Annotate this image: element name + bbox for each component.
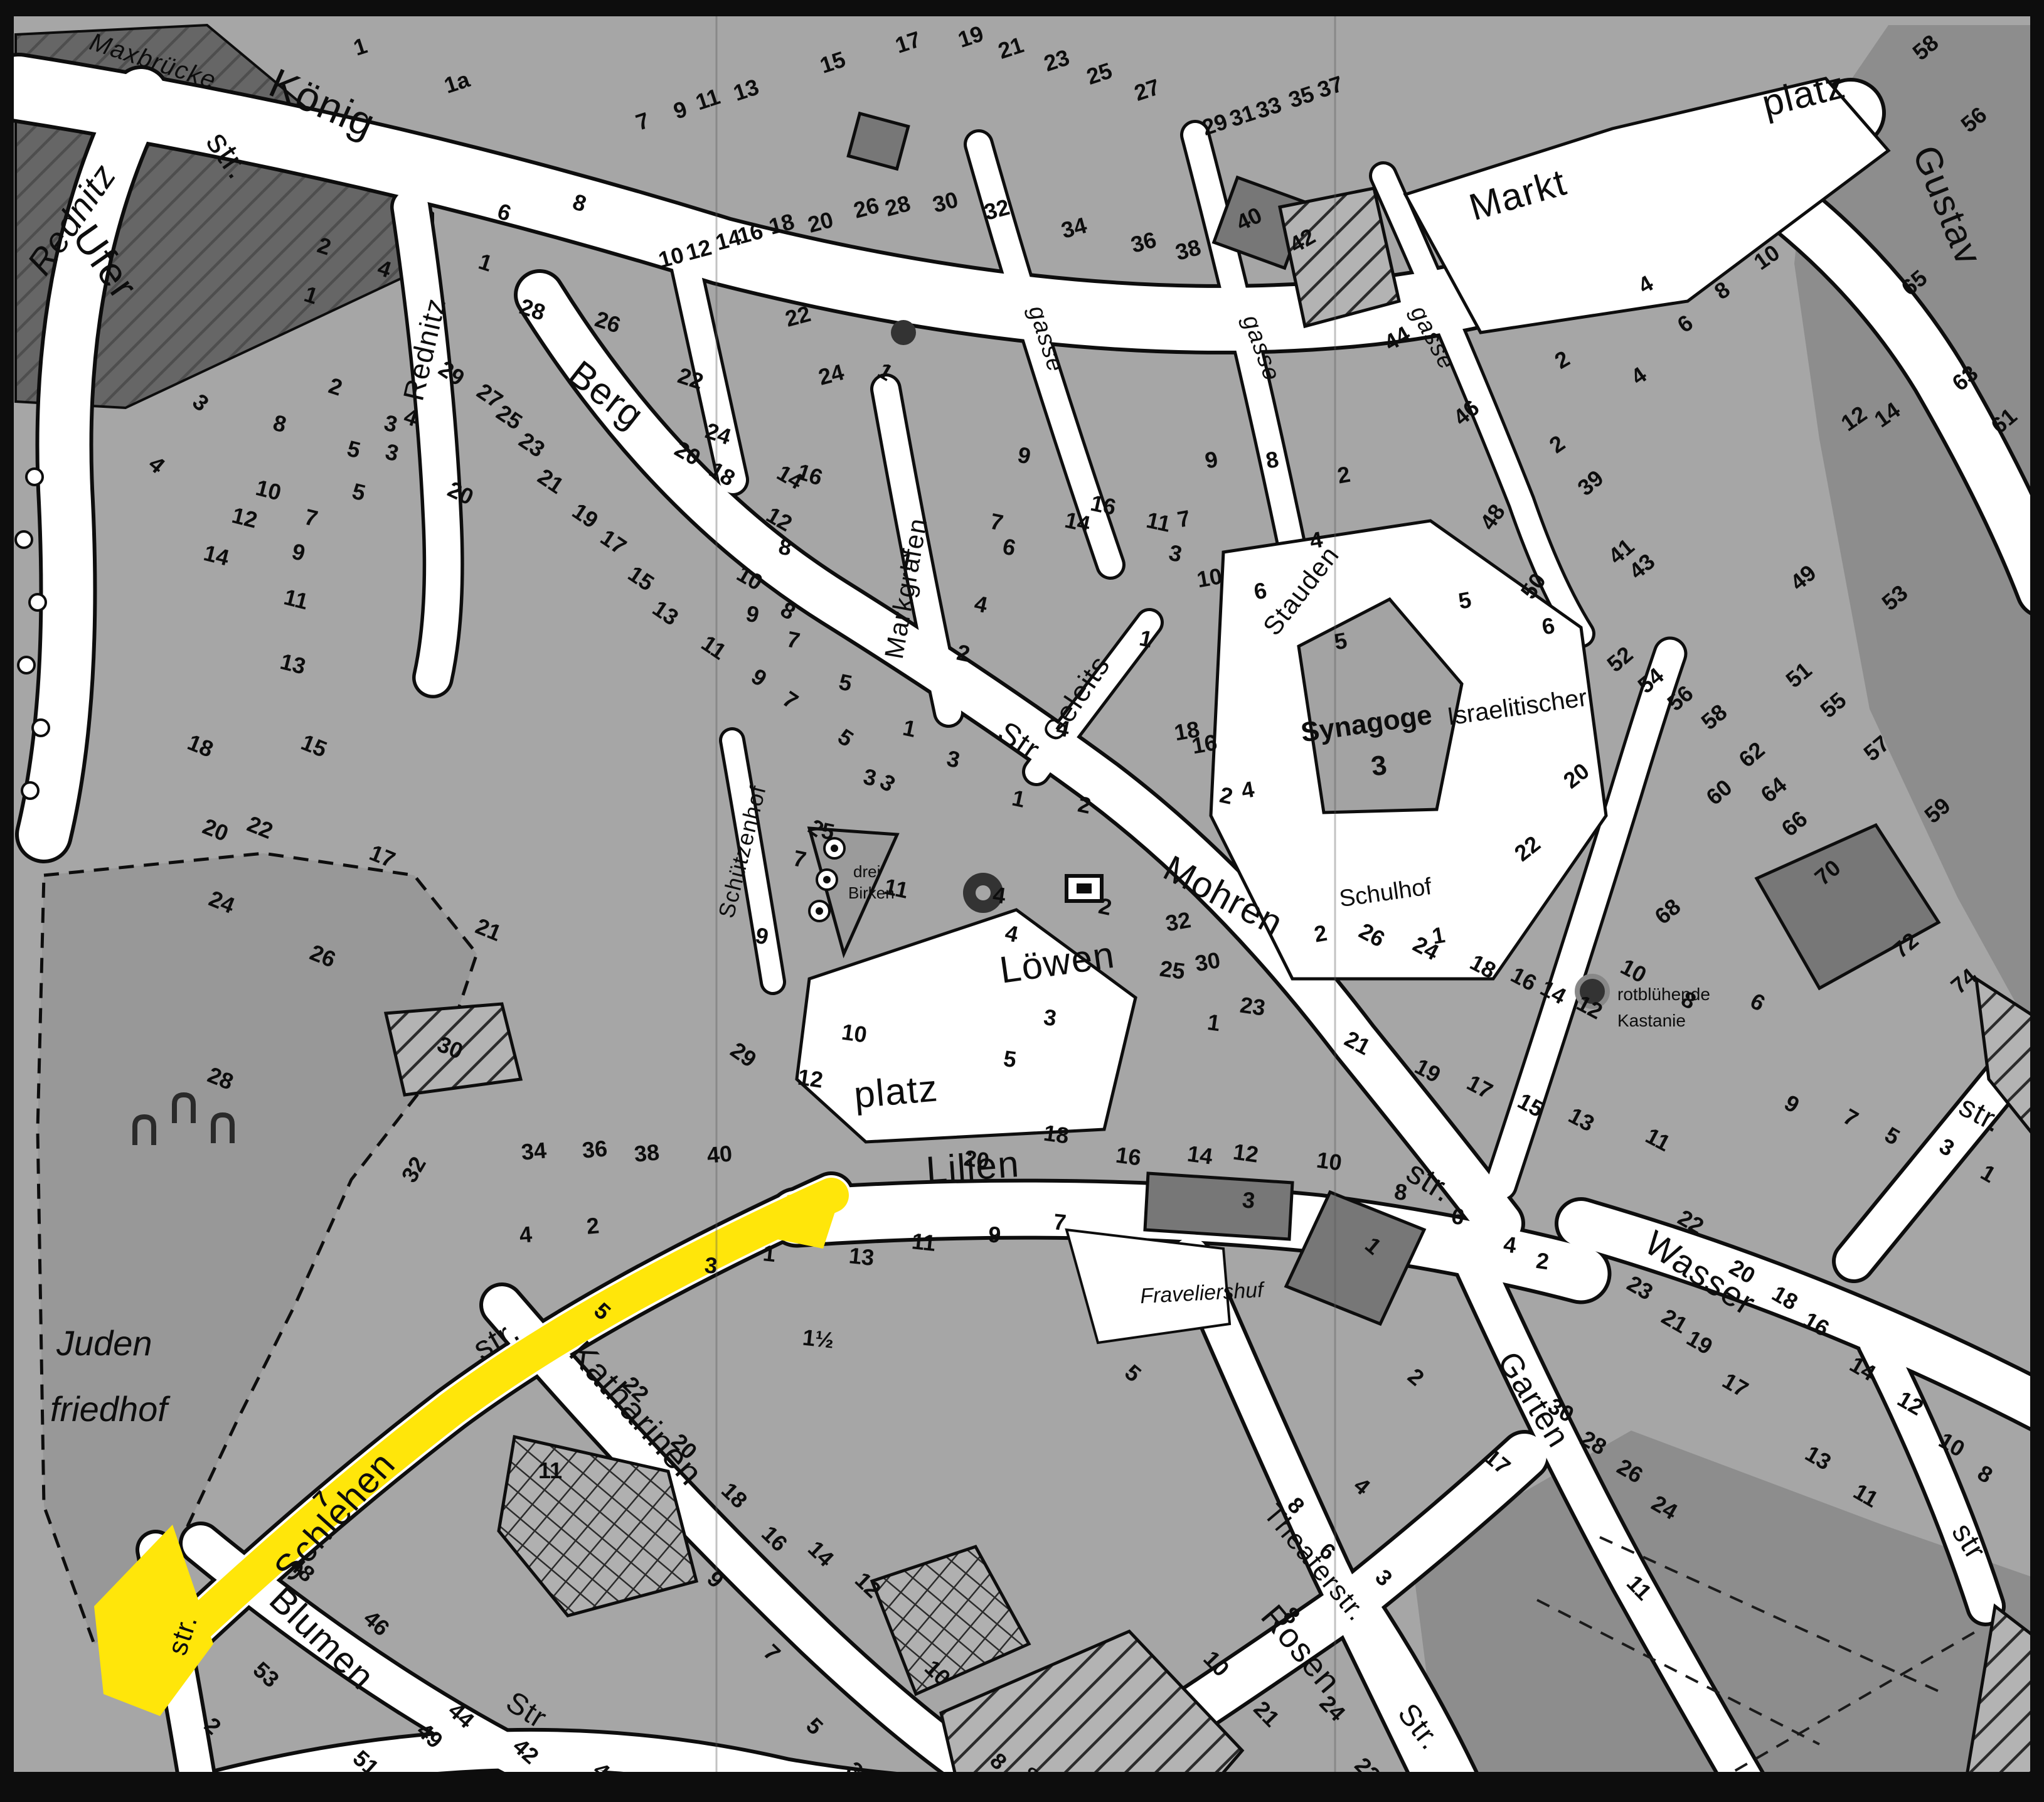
- house-number: 12: [1232, 1139, 1260, 1168]
- house-number: 13: [848, 1242, 875, 1271]
- house-number: 14: [1063, 507, 1093, 537]
- house-number: 10: [840, 1019, 868, 1048]
- house-number: 16: [1190, 729, 1220, 759]
- street-label: platz: [852, 1067, 940, 1116]
- house-number: 3: [1241, 1186, 1256, 1213]
- house-number: 10: [1315, 1147, 1343, 1176]
- house-number: 40: [706, 1140, 733, 1168]
- house-number: 2: [585, 1212, 600, 1239]
- house-number: 16: [1089, 490, 1119, 520]
- monument-icon-core: [1077, 883, 1092, 893]
- house-number: 3: [703, 1252, 718, 1279]
- house-number: 38: [633, 1139, 660, 1166]
- house-number: 10: [1195, 563, 1225, 592]
- map-page: MaxbrückeKönigstr.UferRednitzRednitzBerg…: [0, 0, 2044, 1802]
- house-number: 18: [1042, 1120, 1070, 1149]
- house-number: 16: [1114, 1142, 1142, 1171]
- place-label: friedhof: [50, 1389, 171, 1429]
- house-number: 25: [1158, 956, 1186, 984]
- well-icon: [891, 320, 916, 345]
- place-label: drei: [853, 862, 880, 881]
- house-number: 32: [1164, 907, 1193, 936]
- house-number: 20: [962, 1145, 991, 1174]
- house-number: 4: [518, 1221, 533, 1248]
- house-number: 34: [520, 1137, 547, 1165]
- house-number: 12: [796, 1064, 824, 1093]
- house-number: 14: [1186, 1141, 1214, 1170]
- house-number: 1½: [801, 1325, 835, 1353]
- scanned-city-map: MaxbrückeKönigstr.UferRednitzRednitzBerg…: [0, 0, 2044, 1802]
- house-number: 11: [538, 1458, 562, 1483]
- dark-building-3: [1145, 1173, 1292, 1239]
- fountain-icon-center: [976, 885, 991, 900]
- house-number: 9: [987, 1221, 1002, 1248]
- house-number: 36: [581, 1135, 608, 1163]
- house-number: 23: [1238, 992, 1267, 1021]
- place-label: Juden: [56, 1323, 152, 1363]
- house-number: 1: [762, 1240, 777, 1267]
- place-label: Kastanie: [1617, 1011, 1686, 1030]
- house-number: 11: [910, 1228, 937, 1256]
- house-number: 30: [1193, 947, 1223, 976]
- house-number: 7: [1052, 1208, 1067, 1235]
